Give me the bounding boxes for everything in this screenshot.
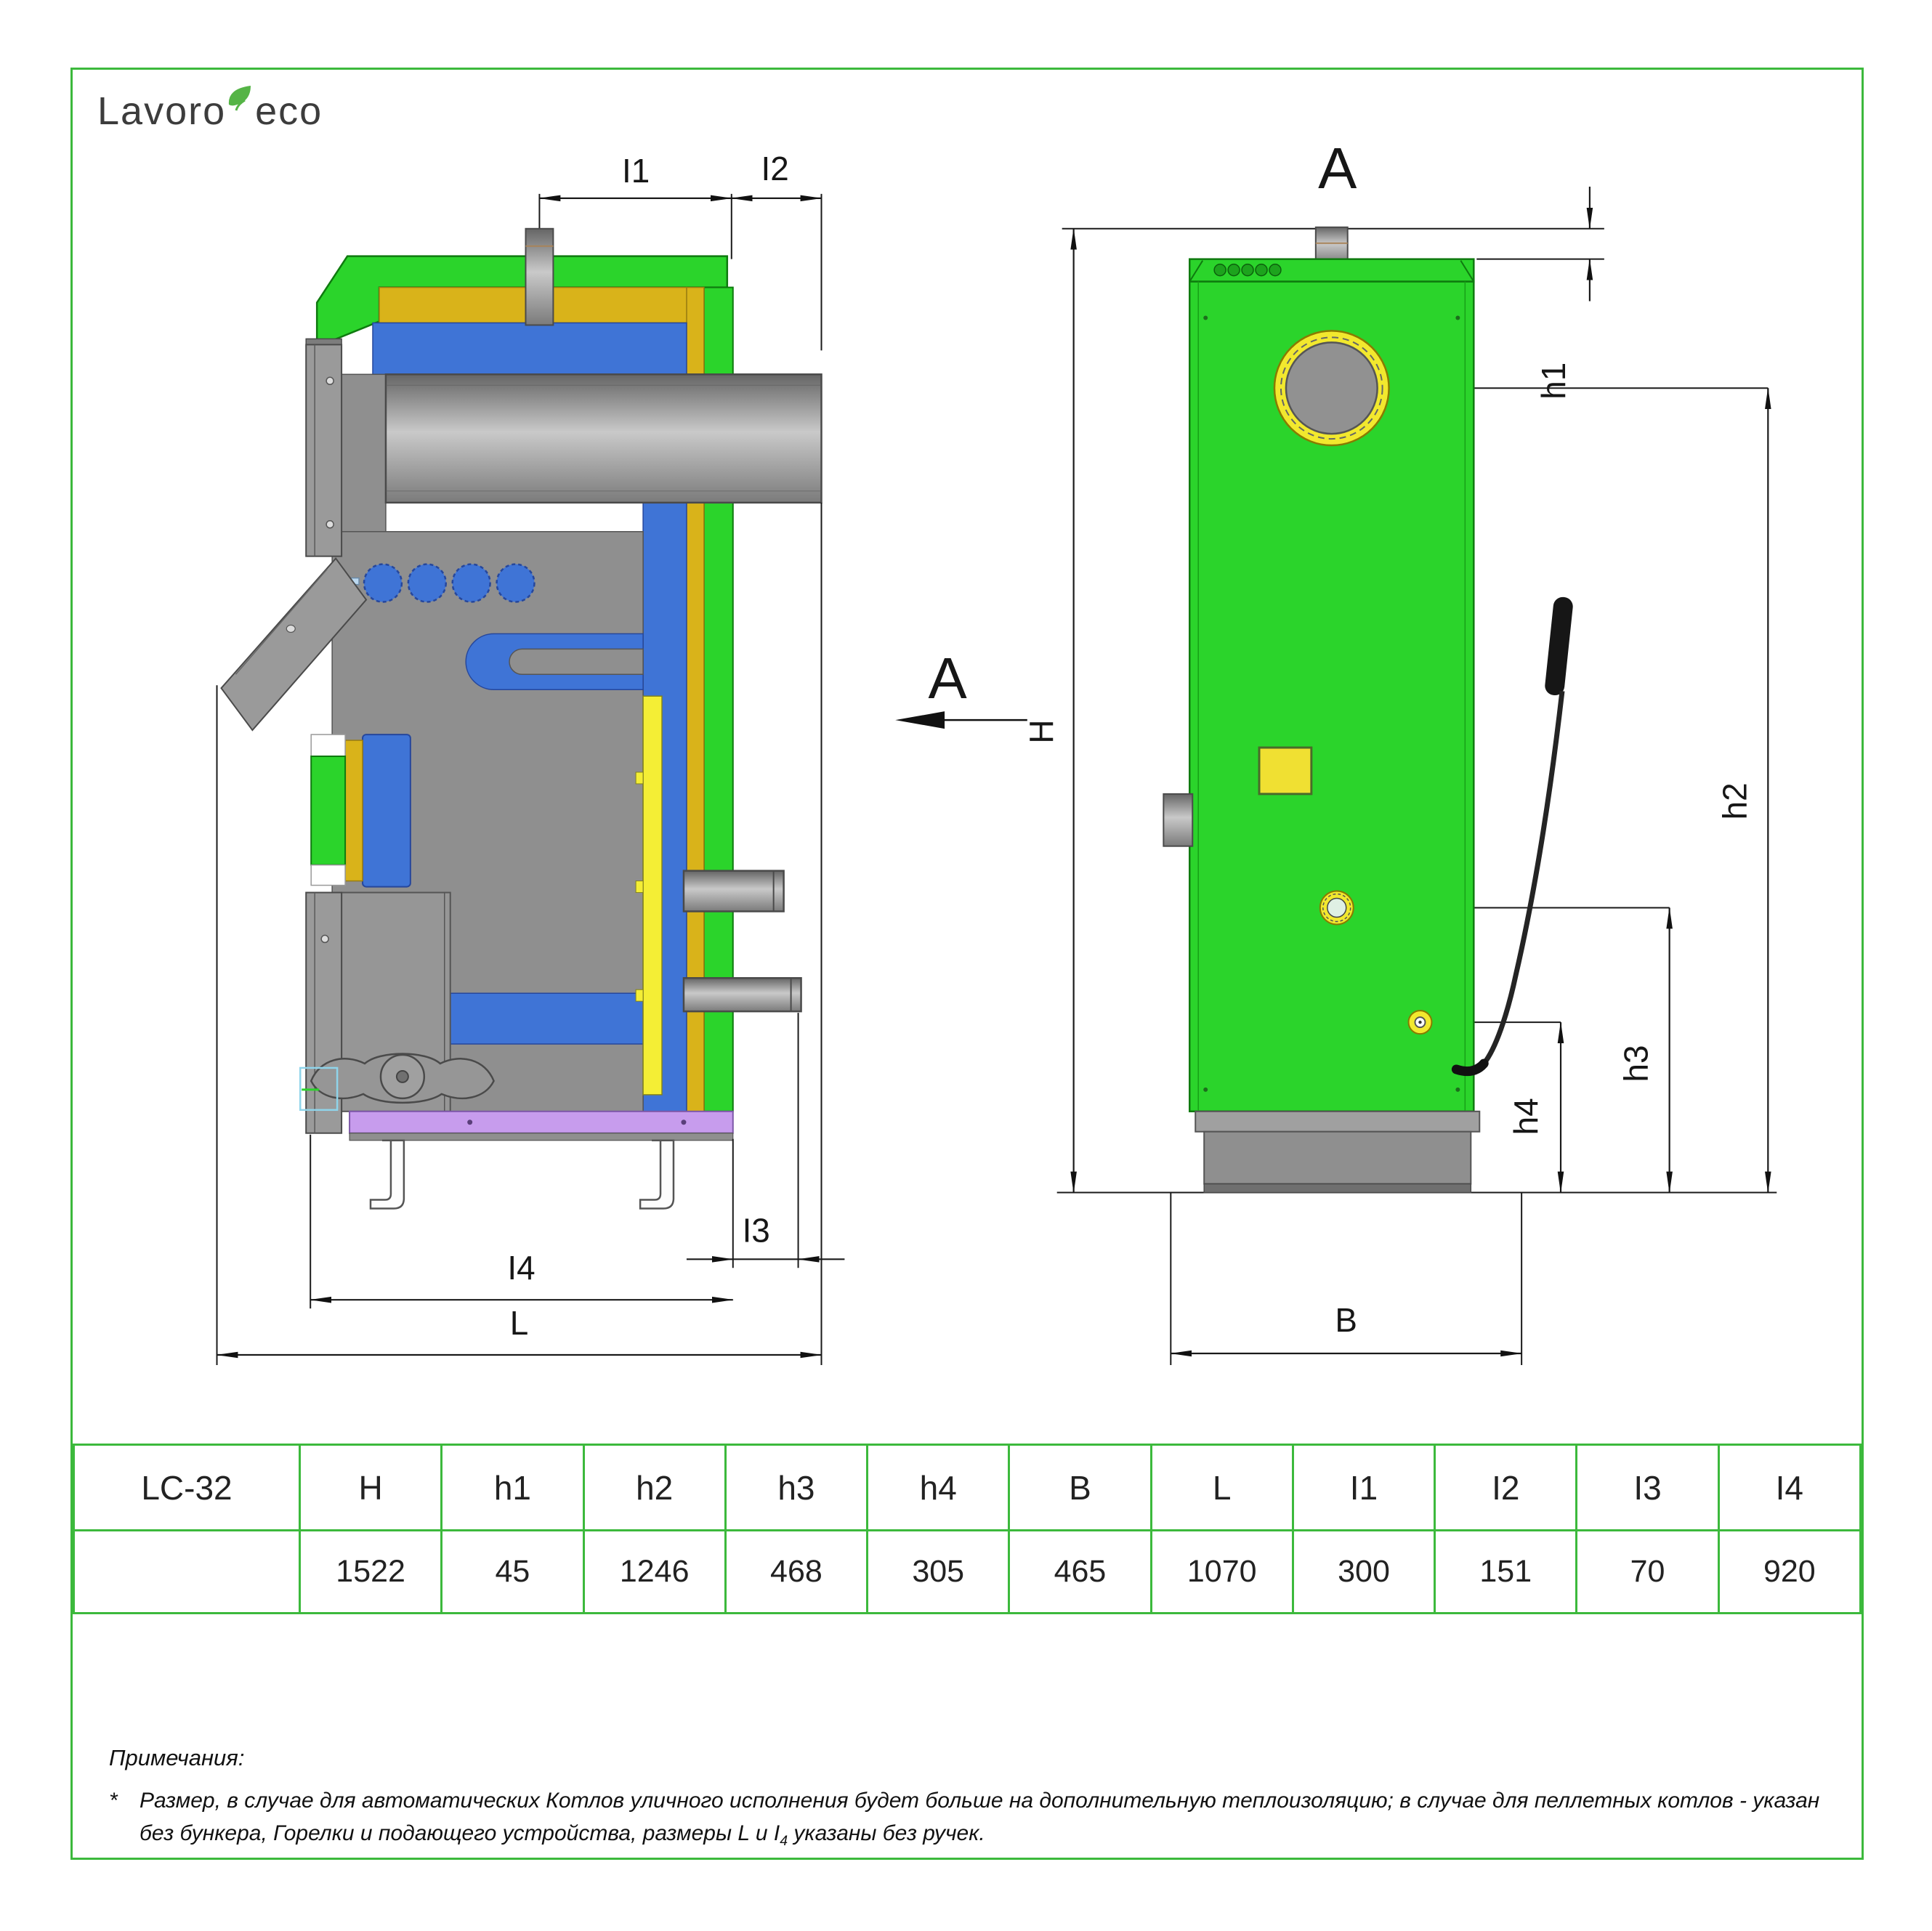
value-i4: 920 [1718, 1531, 1860, 1614]
dim-label-h2: h2 [1715, 782, 1753, 819]
note-text: Размер, в случае для автоматических Котл… [140, 1784, 1832, 1852]
pedestal-base [1195, 1112, 1479, 1193]
water-jacket-top [373, 323, 687, 374]
section-label: A [928, 646, 967, 711]
header-b: B [1009, 1445, 1151, 1531]
flue-outlet [1274, 331, 1389, 445]
side-section-view: I1 I2 [217, 150, 845, 1365]
value-i3: 70 [1577, 1531, 1718, 1614]
flue-baffle-tongue [509, 649, 643, 674]
value-h: 1522 [300, 1531, 442, 1614]
dim-label-h4: h4 [1507, 1098, 1545, 1135]
leg-back [640, 1141, 674, 1209]
control-plate [1259, 748, 1311, 794]
value-l: 1070 [1151, 1531, 1293, 1614]
header-l: L [1151, 1445, 1293, 1531]
value-h1: 45 [442, 1531, 583, 1614]
notes-title: Примечания: [109, 1745, 1832, 1771]
value-h4: 305 [868, 1531, 1009, 1614]
sheet-frame: Lavoro eco [70, 68, 1864, 1860]
vent-holes [1214, 264, 1281, 276]
technical-drawing: I1 I2 [73, 70, 1862, 1446]
dim-label-l: L [510, 1304, 529, 1342]
loading-door-section [311, 734, 411, 886]
header-h3: h3 [725, 1445, 867, 1531]
supply-pipe [684, 871, 784, 912]
sight-glass [1320, 891, 1354, 925]
header-h1: h1 [442, 1445, 583, 1531]
spec-table: LC-32 H h1 h2 h3 h4 B L I1 I2 I3 I4 1522… [73, 1444, 1862, 1614]
boiler-front-body [1163, 227, 1574, 1193]
base-plate [349, 1112, 733, 1133]
header-i4: I4 [1718, 1445, 1860, 1531]
boiler-dimension-sheet: Lavoro eco [0, 0, 1932, 1931]
dim-label-i3: I3 [743, 1211, 770, 1249]
note-item: * Размер, в случае для автоматических Ко… [109, 1784, 1832, 1852]
boiler-section-body [222, 229, 822, 1209]
return-pipe [684, 978, 801, 1011]
header-i1: I1 [1293, 1445, 1434, 1531]
dim-label-b: B [1335, 1301, 1357, 1339]
leg-front [371, 1141, 404, 1209]
damper-lever [311, 1054, 493, 1103]
heat-exchanger-baffle [643, 696, 662, 1095]
value-model-empty [74, 1531, 300, 1614]
table-header-row: LC-32 H h1 h2 h3 h4 B L I1 I2 I3 I4 [74, 1445, 1861, 1531]
dim-label-i4: I4 [507, 1249, 535, 1287]
chimney-stub [525, 229, 553, 325]
notes-block: Примечания: * Размер, в случае для автом… [109, 1745, 1832, 1852]
dim-label-i2: I2 [761, 150, 789, 187]
value-i2: 151 [1435, 1531, 1577, 1614]
upper-door [306, 339, 341, 556]
dim-label-h: H [1023, 720, 1061, 744]
note-marker: * [109, 1784, 140, 1852]
header-i3: I3 [1577, 1445, 1718, 1531]
side-pipe-stub [1163, 794, 1192, 846]
value-b: 465 [1009, 1531, 1151, 1614]
value-i1: 300 [1293, 1531, 1434, 1614]
table-value-row: 1522 45 1246 468 305 465 1070 300 151 70… [74, 1531, 1861, 1614]
dim-label-h3: h3 [1617, 1045, 1655, 1082]
dim-label-h1: h1 [1535, 363, 1572, 400]
section-arrow: A [895, 646, 1027, 729]
header-h2: h2 [583, 1445, 725, 1531]
front-view: A H h1 h2 h3 [1023, 136, 1777, 1365]
value-h3: 468 [725, 1531, 867, 1614]
view-label: A [1318, 136, 1357, 201]
chimney-stub-front [1316, 227, 1348, 264]
model-cell: LC-32 [74, 1445, 300, 1531]
value-h2: 1246 [583, 1531, 725, 1614]
dim-label-i1: I1 [622, 152, 650, 190]
drain-fitting [1409, 1011, 1432, 1034]
header-h4: h4 [868, 1445, 1009, 1531]
flue-pipe [386, 374, 822, 503]
header-h: H [300, 1445, 442, 1531]
header-i2: I2 [1435, 1445, 1577, 1531]
